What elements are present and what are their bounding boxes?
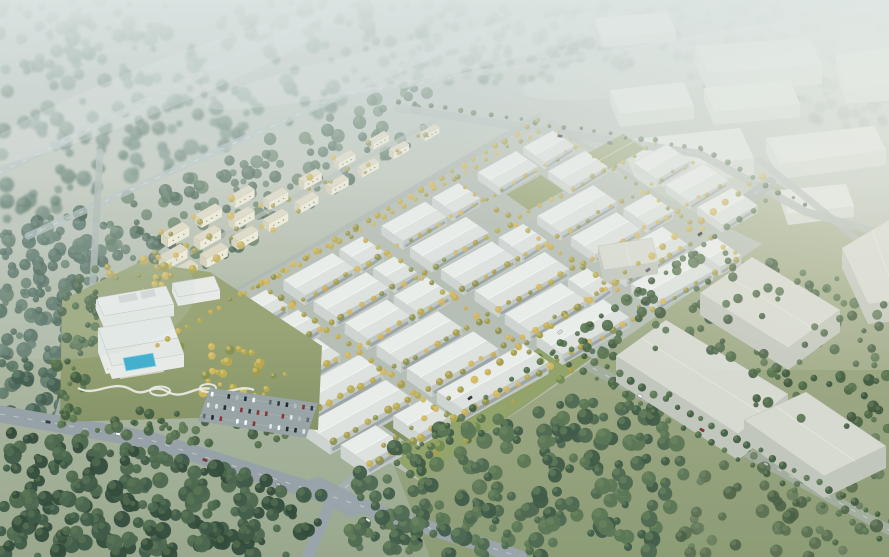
cool-color-cast	[0, 0, 889, 557]
aerial-render-stage	[0, 0, 889, 557]
atmosphere	[0, 0, 889, 557]
industrial-park-masterplan-aerial-view	[0, 0, 889, 557]
